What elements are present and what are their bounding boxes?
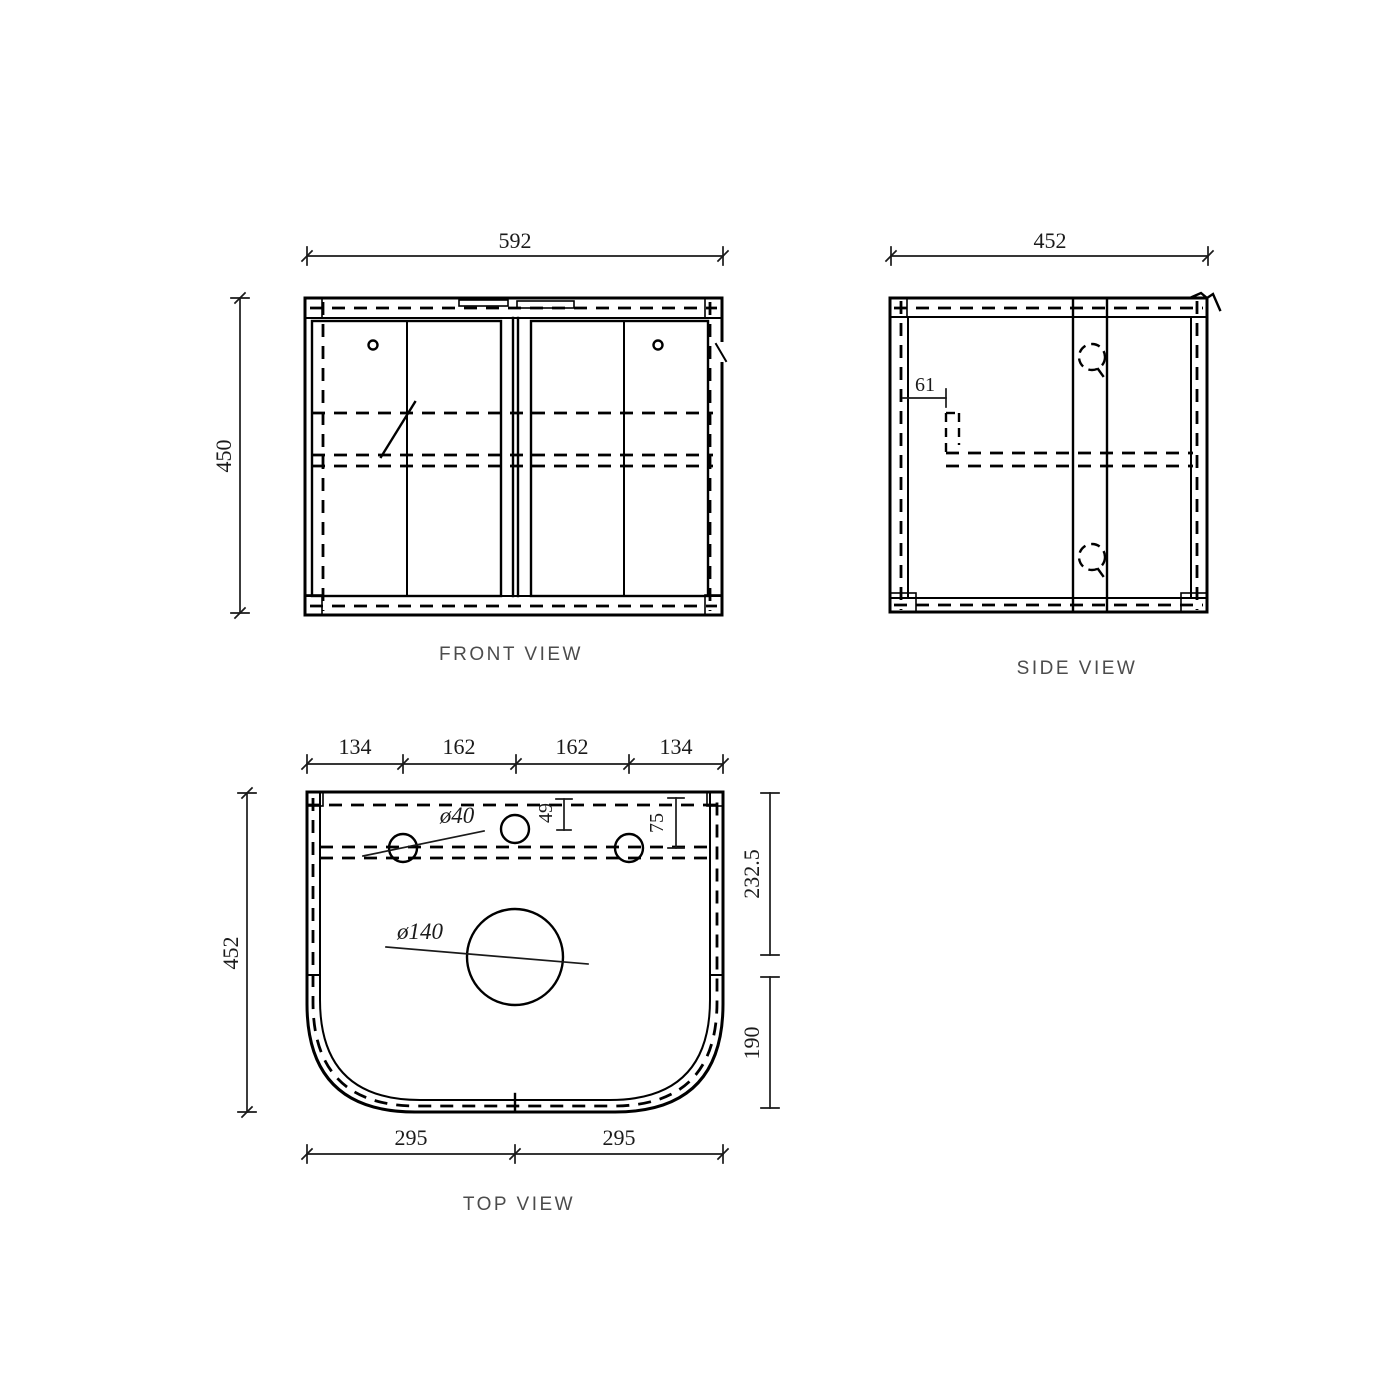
side-hinge-hidden-circle <box>1079 544 1105 570</box>
top-spacing-value-1: 134 <box>339 734 372 759</box>
top-inner-outline <box>320 792 710 1100</box>
top-bottom-dimensions: 295 295 <box>302 1125 728 1163</box>
side-shelf-hidden-lines <box>946 413 1193 466</box>
front-height-value: 450 <box>211 440 236 473</box>
top-body <box>307 792 723 1112</box>
front-width-value: 592 <box>499 228 532 253</box>
tap-hole-dia-label: ø40 <box>439 803 475 828</box>
front-height-dimension: 450 <box>211 293 249 618</box>
top-depth-dimension: 452 <box>218 788 256 1117</box>
front-top-tab <box>517 301 574 308</box>
side-offset-dimension: 61 <box>903 374 946 407</box>
front-top-tab <box>459 300 508 306</box>
technical-drawing-svg: 592 450 <box>0 0 1400 1400</box>
top-outer-outline <box>307 792 723 1112</box>
front-hinge-hole <box>369 341 378 350</box>
top-view-label: TOP VIEW <box>463 1194 575 1215</box>
side-offset-value: 61 <box>915 374 935 396</box>
top-spacing-value-4: 134 <box>660 734 693 759</box>
top-depth-value: 452 <box>218 937 243 970</box>
top-spacing-value-2: 162 <box>443 734 476 759</box>
front-doors <box>312 318 708 596</box>
top-upper-depth-value: 232.5 <box>739 849 764 899</box>
top-door-width-value-1: 295 <box>395 1125 428 1150</box>
side-outer-rect <box>890 298 1207 612</box>
front-right-door <box>531 321 708 596</box>
basin-hole <box>467 909 563 1005</box>
side-view-label: SIDE VIEW <box>1017 658 1138 679</box>
side-hinge-tail <box>1098 369 1103 376</box>
top-door-width-value-2: 295 <box>603 1125 636 1150</box>
tap-hole <box>501 815 529 843</box>
top-spacing-value-3: 162 <box>556 734 589 759</box>
top-right-dimensions: 232.5 190 <box>739 793 779 1108</box>
drawing-canvas: 592 450 <box>0 0 1400 1400</box>
top-hole-annotations: ø40 ø140 49 75 <box>363 798 684 964</box>
leader-line <box>363 831 484 856</box>
side-hinge-hidden-circle <box>1079 344 1105 370</box>
front-edge-break <box>713 342 729 362</box>
top-view: 134 162 162 134 452 232.5 190 <box>218 734 779 1215</box>
side-hinge-tail <box>1098 569 1103 576</box>
side-view: 452 <box>886 228 1220 679</box>
side-hinges <box>1079 344 1105 576</box>
basin-hole-dia-label: ø140 <box>396 919 444 944</box>
front-view-label: FRONT VIEW <box>439 644 583 665</box>
side-width-dimension: 452 <box>886 228 1213 265</box>
corner-block <box>890 593 916 612</box>
top-lower-depth-value: 190 <box>739 1027 764 1060</box>
corner-block <box>1181 593 1207 612</box>
side-width-value: 452 <box>1034 228 1067 253</box>
right-hole-offset-value: 75 <box>646 813 668 833</box>
front-width-dimension: 592 <box>302 228 728 265</box>
center-hole-offset-value: 49 <box>535 803 557 823</box>
front-view: 592 450 <box>211 228 729 665</box>
front-diagonal-mark <box>381 402 415 457</box>
top-hidden-outline <box>313 798 717 1106</box>
center-hole-offset-dimension: 49 <box>535 799 572 830</box>
front-hinge-hole <box>654 341 663 350</box>
top-spacing-dimensions: 134 162 162 134 <box>302 734 728 773</box>
leader-line <box>386 947 588 964</box>
